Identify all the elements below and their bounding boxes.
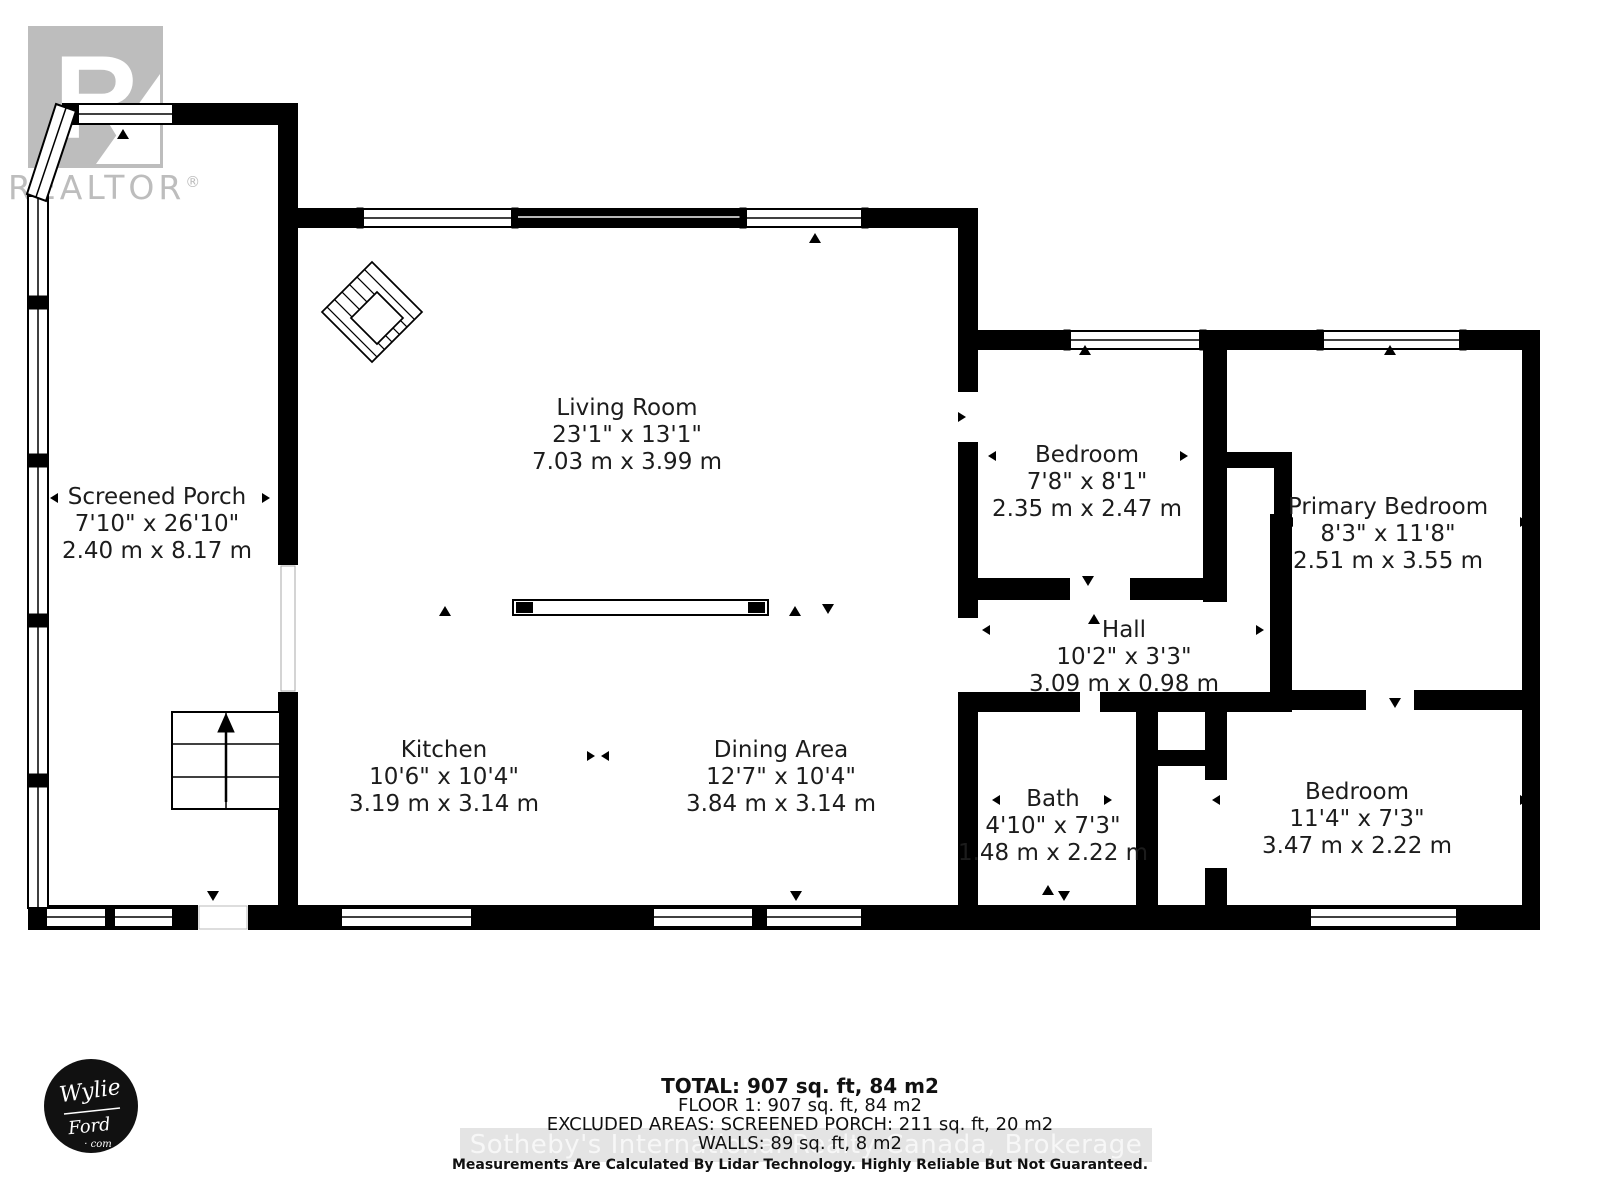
footer-totals: TOTAL: 907 sq. ft, 84 m2 FLOOR 1: 907 sq… bbox=[0, 1076, 1600, 1153]
room-name: Hall bbox=[1029, 617, 1219, 644]
measurement-disclaimer: Measurements Are Calculated By Lidar Tec… bbox=[0, 1157, 1600, 1173]
door-marker bbox=[822, 604, 834, 614]
bedroom1-right-wall bbox=[1203, 350, 1227, 602]
bedroom2-left-wall-upper bbox=[1205, 692, 1227, 780]
room-label-screened-porch: Screened Porch 7'10" x 26'10" 2.40 m x 8… bbox=[62, 484, 252, 565]
living-room-window-right bbox=[740, 208, 868, 228]
porch-bottom-door-opening bbox=[199, 906, 247, 929]
room-name: Primary Bedroom bbox=[1288, 494, 1488, 521]
room-dims-ft: 10'2" x 3'3" bbox=[1029, 644, 1219, 671]
room-name: Living Room bbox=[532, 395, 722, 422]
room-name: Screened Porch bbox=[62, 484, 252, 511]
room-name: Kitchen bbox=[349, 737, 539, 764]
porch-left-window-wall bbox=[28, 196, 48, 908]
primary-bedroom-window bbox=[1317, 330, 1466, 350]
room-dims-m: 3.84 m x 3.14 m bbox=[686, 791, 876, 818]
dining-window-right bbox=[760, 907, 868, 928]
room-dims-ft: 11'4" x 7'3" bbox=[1262, 806, 1452, 833]
kitchen-window bbox=[335, 907, 478, 928]
door-marker bbox=[262, 493, 270, 503]
room-name: Bedroom bbox=[992, 442, 1182, 469]
room-dims-ft: 23'1" x 13'1" bbox=[532, 422, 722, 449]
room-dims-m: 2.35 m x 2.47 m bbox=[992, 496, 1182, 523]
room-dims-m: 1.48 m x 2.22 m bbox=[958, 840, 1148, 867]
room-label-primary-bedroom: Primary Bedroom 8'3" x 11'8" 2.51 m x 3.… bbox=[1288, 494, 1488, 575]
door-marker bbox=[789, 606, 801, 616]
fireplace-icon bbox=[310, 215, 440, 420]
room-dims-ft: 4'10" x 7'3" bbox=[958, 813, 1148, 840]
porch-top-window bbox=[78, 104, 173, 124]
door-marker bbox=[601, 751, 609, 761]
room-label-kitchen: Kitchen 10'6" x 10'4" 3.19 m x 3.14 m bbox=[349, 737, 539, 818]
room-dims-m: 3.19 m x 3.14 m bbox=[349, 791, 539, 818]
linen-closet-wall bbox=[1158, 750, 1205, 766]
door-marker bbox=[790, 891, 802, 901]
wing-right-wall bbox=[1522, 330, 1540, 930]
door-marker bbox=[439, 606, 451, 616]
porch-diagonal-window bbox=[27, 104, 76, 201]
porch-bottom-window-left bbox=[46, 908, 106, 927]
porch-bottom-window-right bbox=[114, 908, 173, 927]
door-marker bbox=[1389, 698, 1401, 708]
floor-area: FLOOR 1: 907 sq. ft, 84 m2 bbox=[0, 1096, 1600, 1115]
bedroom1-bottom-wall-a bbox=[978, 578, 1070, 600]
room-dims-ft: 12'7" x 10'4" bbox=[686, 764, 876, 791]
room-name: Dining Area bbox=[686, 737, 876, 764]
walls-area: WALLS: 89 sq. ft, 8 m2 bbox=[0, 1134, 1600, 1153]
room-dims-ft: 7'10" x 26'10" bbox=[62, 511, 252, 538]
room-divider bbox=[513, 600, 768, 615]
floor-plan-drawing bbox=[0, 0, 1600, 1200]
room-label-dining-area: Dining Area 12'7" x 10'4" 3.84 m x 3.14 … bbox=[686, 737, 876, 818]
floor-plan-page: R REALTOR® bbox=[0, 0, 1600, 1200]
living-room-window-left bbox=[357, 208, 518, 228]
room-dims-m: 3.47 m x 2.22 m bbox=[1262, 833, 1452, 860]
total-area: TOTAL: 907 sq. ft, 84 m2 bbox=[0, 1076, 1600, 1096]
door-marker bbox=[1082, 576, 1094, 586]
room-label-bath: Bath 4'10" x 7'3" 1.48 m x 2.22 m bbox=[958, 786, 1148, 867]
room-dims-ft: 7'8" x 8'1" bbox=[992, 469, 1182, 496]
door-marker bbox=[587, 751, 595, 761]
door-marker bbox=[117, 129, 129, 139]
room-name: Bedroom bbox=[1262, 779, 1452, 806]
room-label-bedroom-2: Bedroom 11'4" x 7'3" 3.47 m x 2.22 m bbox=[1262, 779, 1452, 860]
primary-bottom-wall-b bbox=[1414, 690, 1522, 710]
main-left-wall-upper bbox=[278, 103, 298, 565]
main-right-wall-upper bbox=[958, 208, 978, 392]
room-dims-m: 3.09 m x 0.98 m bbox=[1029, 671, 1219, 698]
door-marker bbox=[1212, 795, 1220, 805]
stairs bbox=[172, 712, 280, 809]
room-label-hall: Hall 10'2" x 3'3" 3.09 m x 0.98 m bbox=[1029, 617, 1219, 698]
room-label-living-room: Living Room 23'1" x 13'1" 7.03 m x 3.99 … bbox=[532, 395, 722, 476]
door-marker bbox=[982, 625, 990, 635]
room-dims-m: 7.03 m x 3.99 m bbox=[532, 449, 722, 476]
door-marker bbox=[50, 493, 58, 503]
room-name: Bath bbox=[958, 786, 1148, 813]
main-right-wall-mid bbox=[958, 442, 978, 618]
porch-door-opening bbox=[281, 566, 295, 691]
door-marker bbox=[958, 412, 966, 422]
dining-window-left bbox=[647, 907, 753, 928]
bedroom2-left-wall-lower bbox=[1205, 868, 1227, 905]
excluded-areas: EXCLUDED AREAS: SCREENED PORCH: 211 sq. … bbox=[0, 1115, 1600, 1134]
door-marker bbox=[809, 233, 821, 243]
porch-bottom-wall-b bbox=[248, 905, 283, 930]
room-dims-ft: 8'3" x 11'8" bbox=[1288, 521, 1488, 548]
room-dims-m: 2.40 m x 8.17 m bbox=[62, 538, 252, 565]
door-marker bbox=[1058, 891, 1070, 901]
bedroom2-window bbox=[1304, 907, 1463, 928]
bedroom1-bottom-wall-b bbox=[1130, 578, 1205, 600]
door-marker bbox=[207, 891, 219, 901]
room-label-bedroom-1: Bedroom 7'8" x 8'1" 2.35 m x 2.47 m bbox=[992, 442, 1182, 523]
room-dims-ft: 10'6" x 10'4" bbox=[349, 764, 539, 791]
room-dims-m: 2.51 m x 3.55 m bbox=[1288, 548, 1488, 575]
door-marker bbox=[1256, 625, 1264, 635]
primary-bottom-wall-a bbox=[1270, 690, 1366, 710]
door-marker bbox=[1042, 885, 1054, 895]
